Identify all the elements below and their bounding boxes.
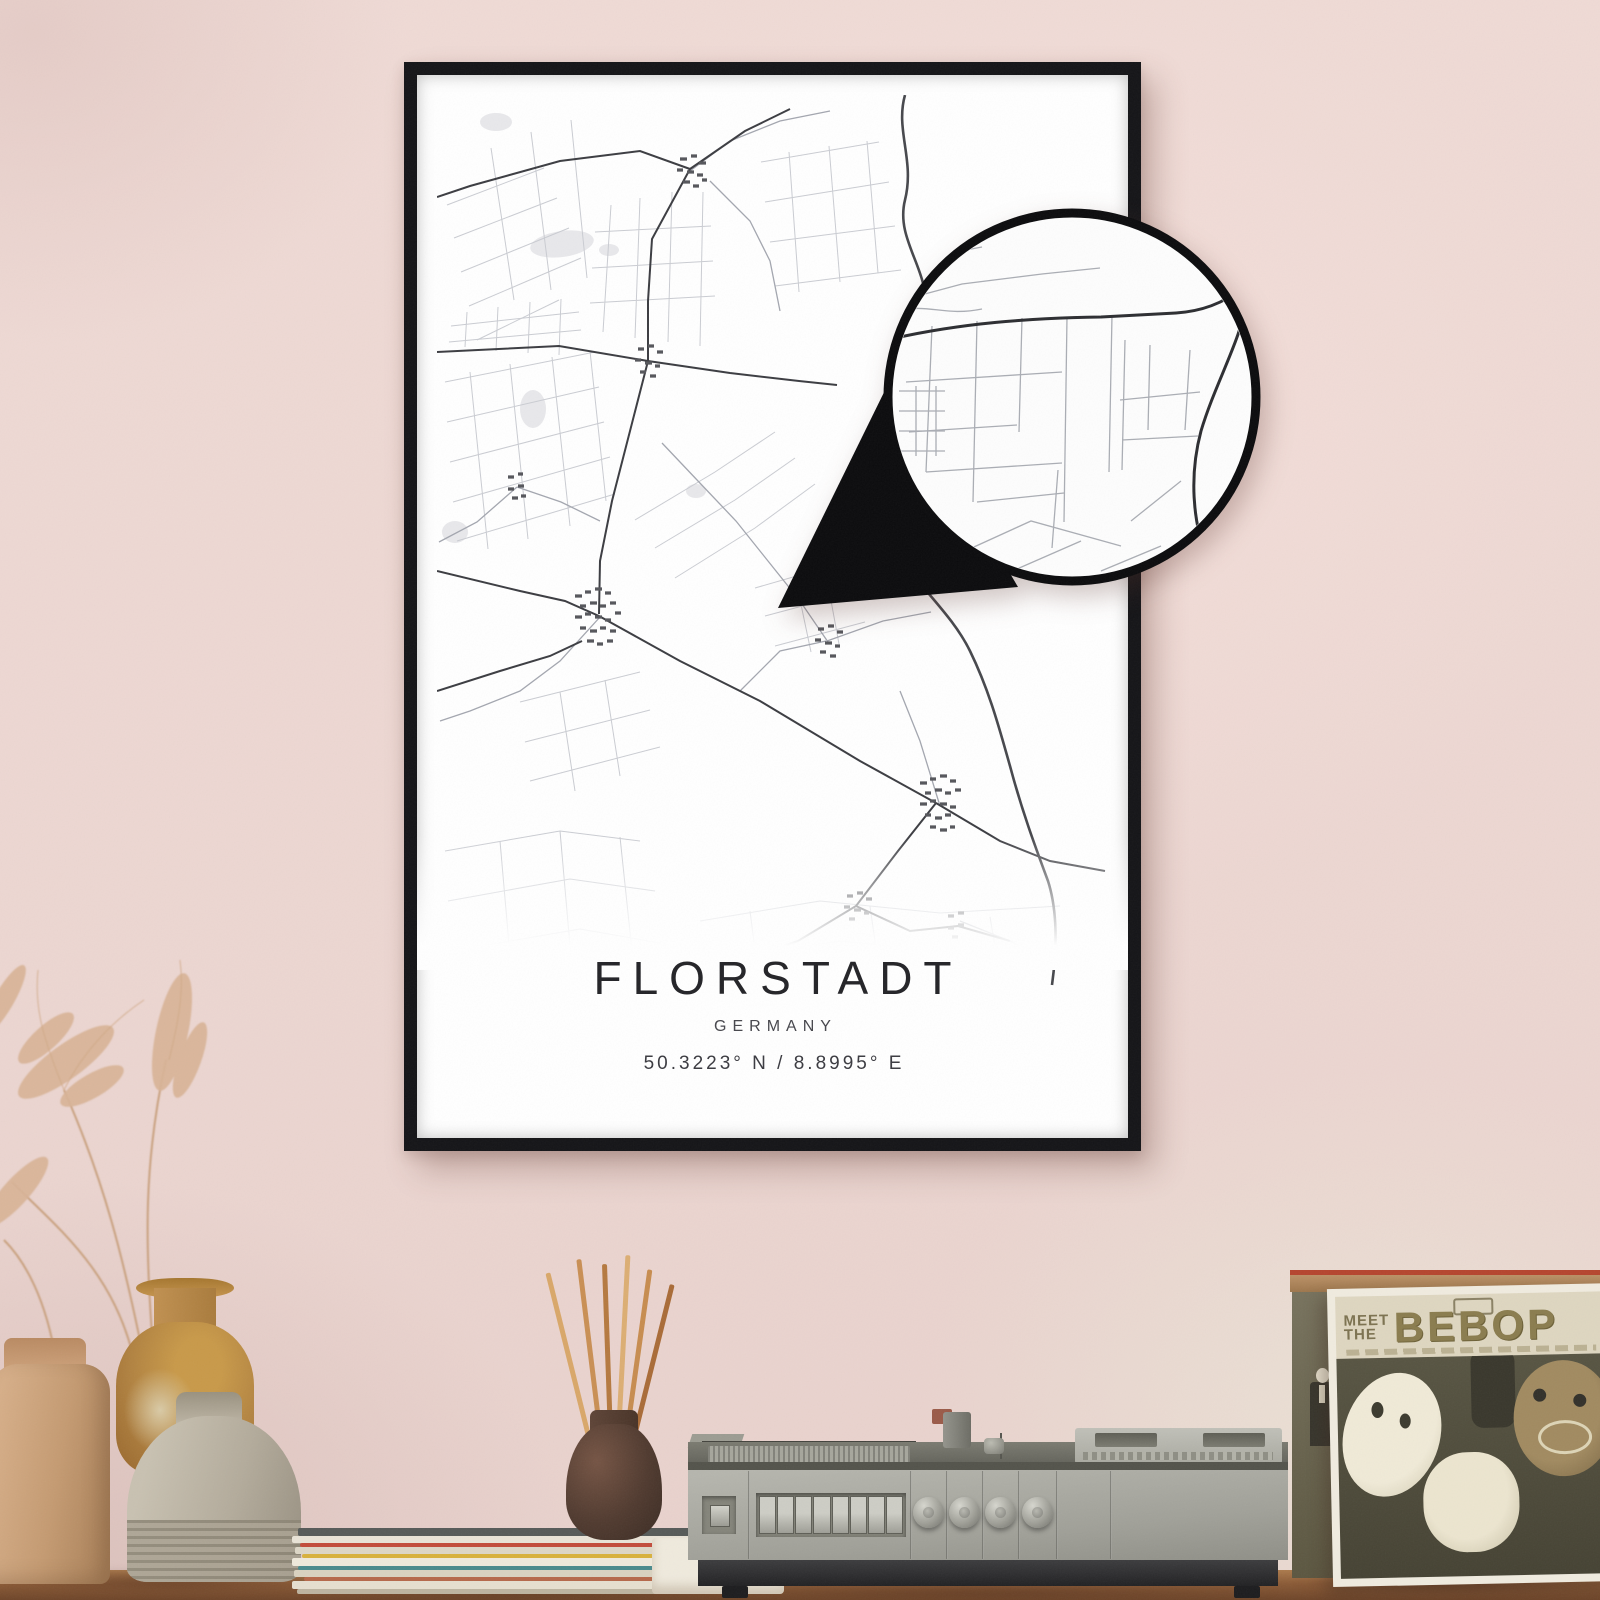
- panel-seam: [1056, 1471, 1058, 1559]
- sleeve-meet-the: MEET THE: [1343, 1314, 1389, 1343]
- sleeve-artwork: [1336, 1353, 1600, 1579]
- power-button: [702, 1496, 736, 1534]
- record-sleeve-bebop: MEET THE BEBOP: [1327, 1283, 1600, 1587]
- player-foot: [1234, 1586, 1260, 1598]
- power-button-cap: [710, 1505, 730, 1527]
- preset-button: [795, 1496, 812, 1534]
- room-scene: FLORSTADT GERMANY 50.3223° N / 8.8995° E: [0, 0, 1600, 1600]
- sleeve-back-figure-shirt: [1319, 1385, 1325, 1403]
- preset-button: [868, 1496, 885, 1534]
- bass-knob: [949, 1497, 980, 1528]
- panel-seam: [748, 1471, 750, 1559]
- map-landuse-patches: [442, 113, 706, 543]
- panel-seam: [1110, 1471, 1112, 1559]
- magnifier-ring-icon: [888, 213, 1256, 581]
- player-platter-ribs: [708, 1446, 910, 1463]
- lid-slot: [1095, 1433, 1157, 1447]
- poster-coordinates: 50.3223° N / 8.8995° E: [417, 1053, 1128, 1075]
- vase-gray: [127, 1416, 301, 1582]
- panel-seam: [946, 1471, 948, 1559]
- preset-button-row: [756, 1493, 906, 1537]
- poster-caption: FLORSTADT GERMANY 50.3223° N / 8.8995° E: [417, 951, 1128, 1075]
- treble-knob: [985, 1497, 1016, 1528]
- art-blob-center: [1422, 1451, 1520, 1553]
- map-fade-overlay: [417, 835, 1128, 970]
- preset-button: [777, 1496, 794, 1534]
- sleeve-header: MEET THE BEBOP: [1335, 1291, 1600, 1359]
- preset-button: [813, 1496, 830, 1534]
- art-bear-head: [1512, 1359, 1600, 1477]
- reed-diffuser-bottle: [566, 1424, 662, 1540]
- preset-button: [886, 1496, 903, 1534]
- preset-button: [850, 1496, 867, 1534]
- vase-gray-ribs: [127, 1520, 301, 1582]
- lid-ticks: [1083, 1452, 1273, 1460]
- poster-subtitle: GERMANY: [417, 1018, 1128, 1036]
- art-face-left-eye: [1371, 1402, 1383, 1418]
- preset-button: [759, 1496, 776, 1534]
- panel-seam: [910, 1471, 912, 1559]
- poster-title: FLORSTADT: [417, 951, 1128, 1005]
- sleeve-title: BEBOP: [1393, 1300, 1558, 1351]
- art-face-left-eye: [1400, 1413, 1411, 1428]
- panel-seam: [1018, 1471, 1020, 1559]
- vase-tan: [0, 1364, 110, 1584]
- player-base: [698, 1560, 1278, 1586]
- volume-knob: [913, 1497, 944, 1528]
- art-figure-dark: [1470, 1353, 1516, 1428]
- deck-small-knob: [984, 1438, 1004, 1454]
- tuning-knob: [1022, 1497, 1053, 1528]
- zoom-detail-circle: [765, 183, 1270, 615]
- record-player: [688, 1405, 1288, 1597]
- player-foot: [722, 1586, 748, 1598]
- panel-seam: [982, 1471, 984, 1559]
- player-right-lid: [1075, 1428, 1282, 1464]
- preset-button: [832, 1496, 849, 1534]
- sleeve-back-figure-head: [1316, 1368, 1329, 1383]
- sleeve-the: THE: [1344, 1328, 1390, 1343]
- tonearm-base: [943, 1412, 971, 1448]
- pampas-grass: [0, 940, 274, 1360]
- lid-slot: [1203, 1433, 1265, 1447]
